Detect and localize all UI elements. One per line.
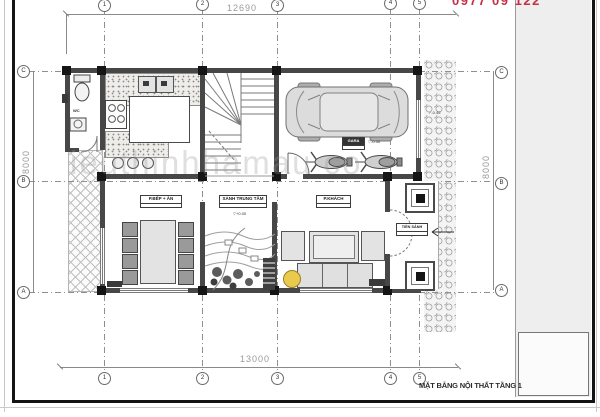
floor-plan-sheet: 0977 09 122 MẶT BẰNG NỘI THẤT TẦNG 1 ⌐-0… (0, 0, 600, 417)
grid-bubble-2-bottom: 2 (196, 372, 209, 385)
dining-chair (178, 254, 194, 269)
grid-line-2 (202, 9, 203, 372)
porch-column (405, 183, 435, 213)
grid-bubble-B-left: B (17, 175, 30, 188)
dim-bottom-value: 13000 (240, 354, 270, 364)
bar-stool (127, 157, 139, 169)
column (413, 66, 422, 75)
grid-line-3 (277, 9, 278, 372)
grid-bubble-3-bottom: 3 (271, 372, 284, 385)
dim-line-left (33, 71, 34, 292)
bar-stool (142, 157, 154, 169)
dining-chair (178, 222, 194, 237)
entry-arrow-icon (424, 226, 454, 238)
car-icon (286, 83, 408, 141)
grid-bubble-A-left: A (17, 286, 30, 299)
grid-bubble-1-bottom: 1 (98, 372, 111, 385)
drawing-title: MẶT BẰNG NỘI THẤT TẦNG 1 (419, 381, 513, 390)
dim-line-right (493, 72, 494, 290)
armchair (361, 231, 385, 261)
wall-mid-left (100, 174, 205, 179)
living-window (300, 288, 372, 293)
level-flag-icon: ⌐ (429, 110, 431, 115)
window-tag (369, 279, 385, 286)
hall-label: SẢNH TRUNG TÂM (219, 195, 267, 208)
grid-bubble-A-right: A (495, 284, 508, 297)
wc-label: WC (73, 108, 80, 113)
dining-chair (122, 270, 138, 285)
grid-bubble-5-top: 5 (413, 0, 426, 10)
dining-chair (178, 238, 194, 253)
window-tag (107, 281, 122, 287)
plant-pot (283, 270, 301, 288)
sheet-edge-left (4, 0, 5, 412)
grid-bubble-1-top: 1 (98, 0, 111, 12)
bar-stool (112, 157, 124, 169)
hall-rock-garden (205, 224, 275, 290)
grid-bubble-C-right: C (495, 66, 508, 79)
dim-ext-top-left (66, 14, 67, 54)
column (97, 172, 106, 181)
grid-bubble-C-left: C (17, 65, 30, 78)
column (97, 286, 106, 295)
wc-duct (62, 94, 68, 103)
grid-bubble-4-top: 4 (384, 0, 397, 10)
coffee-table (309, 231, 359, 263)
dim-line-top (66, 14, 456, 15)
living-label: P.KHÁCH (316, 195, 351, 208)
dim-left-value: 8000 (21, 150, 31, 174)
staircase (205, 73, 274, 177)
motorbike-icon (353, 150, 403, 174)
stove-icon (105, 100, 127, 129)
sofa (297, 263, 373, 288)
garage-door-arc (287, 150, 309, 175)
sheet-edge-bottom (0, 407, 600, 408)
column (413, 172, 422, 181)
title-block-panel (515, 0, 591, 397)
kitchen-dining-label: P.BẾP + ĂN (140, 195, 182, 208)
hall-level-marker: ▽+0.00 (233, 211, 246, 216)
grid-bubble-3-top: 3 (271, 0, 284, 12)
path-level-marker: ⌐-0.45 (429, 110, 440, 115)
dim-line-bottom (60, 367, 458, 368)
garage-side-window (416, 100, 421, 158)
dim-top-value: 12690 (227, 3, 257, 13)
level-flag-icon: ▽ (368, 139, 371, 144)
grid-bubble-2-top: 2 (196, 0, 209, 11)
dining-chair (178, 270, 194, 285)
hotline-watermark: 0977 09 122 (452, 0, 541, 8)
dining-table (140, 220, 176, 284)
wall-stair-garage (274, 68, 279, 178)
kitchen-island (129, 96, 190, 143)
dining-left-window (100, 228, 105, 284)
title-block-box (518, 332, 589, 396)
motorbike-icon (303, 150, 353, 174)
level-flag-icon: ▽ (233, 211, 236, 216)
garage-level-marker: ▽-0.30 (368, 139, 380, 144)
grid-bubble-4-bottom: 4 (384, 372, 397, 385)
sink-faucet (143, 81, 149, 86)
dim-right-value: 8000 (481, 155, 491, 179)
sheet-edge-right (596, 0, 597, 412)
porch-column (405, 261, 435, 291)
garage-label: GARA (342, 137, 365, 150)
dining-chair (122, 238, 138, 253)
dining-chair (122, 222, 138, 237)
wall-mid-garage-b (303, 174, 421, 179)
dining-window (120, 288, 188, 293)
grid-bubble-B-right: B (495, 177, 508, 190)
sink-faucet (161, 81, 167, 86)
armchair (281, 231, 305, 261)
dining-chair (122, 254, 138, 269)
